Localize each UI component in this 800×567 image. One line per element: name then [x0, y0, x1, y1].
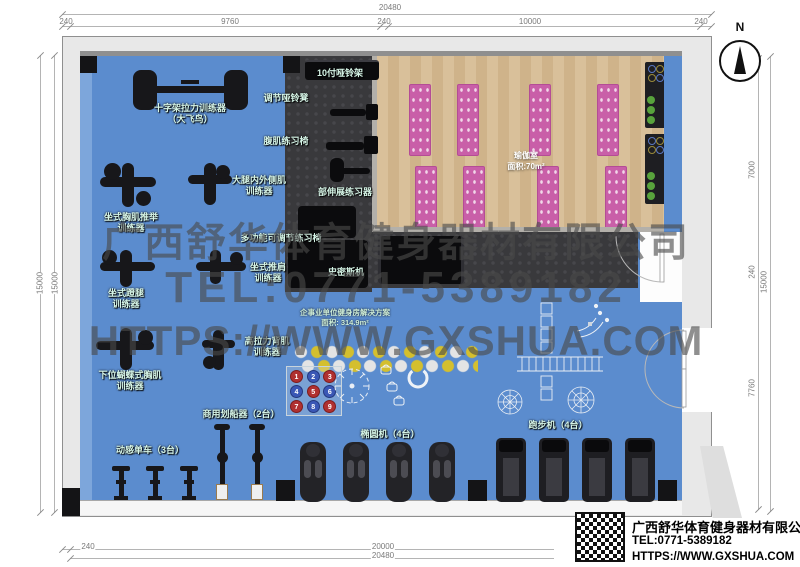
label-leg-press: 坐式蹬腿 训练器	[108, 288, 144, 310]
label-adj-db-bench: 调节哑铃凳	[263, 93, 308, 104]
part	[349, 444, 363, 457]
part	[306, 444, 320, 457]
dim-line-bottom-inner	[62, 549, 554, 550]
roller-end	[648, 146, 656, 154]
part	[433, 460, 440, 478]
medicine-ball: 1	[290, 370, 303, 383]
gym-ball	[647, 172, 655, 180]
part	[204, 163, 216, 205]
medicine-ball-rack: 1 2 3 4 5 6 7 8 9	[286, 366, 342, 416]
label-spin-bike: 动感单车（3台）	[116, 445, 184, 456]
part	[358, 460, 365, 478]
label-thigh: 大腿内外侧肌 训练器	[232, 175, 286, 197]
medicine-ball: 6	[323, 385, 336, 398]
dim-top-seg-2: 9760	[220, 17, 240, 26]
column	[80, 56, 97, 73]
part	[136, 191, 151, 206]
vestibule	[640, 232, 682, 302]
yoga-equipment-shelf	[645, 62, 664, 128]
dim-right-outer: 15000	[760, 271, 769, 293]
label-chest-press: 坐式胸肌推举 训练器	[104, 212, 158, 234]
roller-end	[656, 74, 664, 82]
part	[503, 458, 519, 496]
part	[330, 109, 366, 116]
medicine-ball: 9	[323, 400, 336, 413]
gym-ball	[647, 116, 655, 124]
label-elliptical: 椭圆机（4台）	[360, 429, 419, 440]
yoga-mat	[537, 166, 559, 232]
machine-thigh-abductor	[188, 163, 234, 205]
part	[203, 356, 216, 369]
part	[217, 452, 228, 463]
dim-left-outer: 15000	[36, 272, 45, 294]
dim-left-inner: 15000	[51, 272, 60, 294]
label-crossover: 十字架拉力训练器 （大飞鸟）	[154, 103, 226, 125]
part	[330, 158, 344, 182]
part	[150, 480, 160, 484]
yoga-mat	[415, 166, 437, 232]
machine-treadmill	[539, 438, 569, 502]
part	[392, 444, 406, 457]
yoga-mat	[463, 166, 485, 232]
logo-url: HTTPS://WWW.GXSHUA.COM	[632, 551, 794, 563]
multi-rack	[288, 240, 368, 288]
qr-code	[575, 512, 625, 562]
part	[585, 440, 609, 452]
label-rower: 商用划船器（2台）	[202, 409, 279, 420]
machine-leg-press	[100, 250, 157, 288]
part	[202, 340, 235, 348]
dim-tick	[708, 23, 715, 30]
part	[546, 458, 562, 496]
yoga-mat	[605, 166, 627, 232]
part	[589, 458, 605, 496]
machine-spin-bike	[146, 462, 164, 502]
part	[102, 250, 117, 265]
machine-elliptical	[386, 442, 412, 502]
label-treadmill: 跑步机（4台）	[528, 420, 587, 431]
part	[326, 142, 364, 150]
machine-elliptical	[429, 442, 455, 502]
gym-ball	[647, 182, 655, 190]
dim-bottom-seg-2: 20000	[371, 542, 395, 551]
stretch-trainer	[330, 158, 372, 184]
machine-pec-fly	[96, 328, 156, 370]
part	[252, 452, 263, 463]
machine-treadmill	[625, 438, 655, 502]
machine-rower	[212, 424, 232, 502]
label-back-stretch: 部伸展练习器	[318, 187, 372, 198]
machine-rower	[247, 424, 267, 502]
column	[658, 480, 677, 501]
medicine-ball: 2	[307, 370, 320, 383]
yoga-mat	[457, 84, 479, 156]
label-db-rack: 10付哑铃架	[317, 68, 363, 79]
gym-ball	[647, 192, 655, 200]
part	[347, 460, 354, 478]
logo-tel: TEL:0771-5389182	[632, 535, 732, 547]
part	[148, 496, 162, 500]
part	[216, 165, 230, 179]
part	[230, 252, 243, 265]
part	[182, 496, 196, 500]
dim-right-seg-1: 7000	[748, 161, 757, 179]
label-shoulder-press: 坐式推肩 训练器	[250, 262, 286, 284]
part	[390, 460, 397, 478]
part	[628, 440, 652, 452]
roller-end	[656, 146, 664, 154]
compass-icon	[719, 40, 761, 82]
part	[184, 480, 194, 484]
part	[251, 484, 263, 500]
dim-bottom-seg-1: 240	[80, 542, 95, 551]
yoga-mat	[597, 84, 619, 156]
label-multi-bench: 多功能可调节练习椅	[240, 233, 321, 244]
dim-line-top-total	[62, 14, 712, 15]
medicine-ball: 5	[307, 385, 320, 398]
smith-machine	[378, 236, 464, 284]
compass-needle	[734, 46, 746, 74]
label-lat-pull: 高拉力背肌 训练器	[244, 336, 289, 358]
part	[304, 460, 311, 478]
dim-right-seg-3: 7760	[748, 379, 757, 397]
part	[210, 250, 221, 284]
part	[216, 484, 228, 500]
column	[62, 488, 80, 516]
part	[444, 460, 451, 478]
gym-floor-edge	[80, 56, 92, 500]
part	[366, 104, 378, 120]
dim-tick	[51, 509, 58, 516]
part	[315, 460, 322, 478]
medicine-ball: 8	[307, 400, 320, 413]
machine-treadmill	[582, 438, 612, 502]
column	[276, 480, 295, 501]
machine-spin-bike	[180, 462, 198, 502]
label-smith: 史密斯机	[328, 267, 364, 278]
dim-line-bottom-total	[70, 558, 554, 559]
yoga-mat	[409, 84, 431, 156]
dim-top-seg-4: 10000	[518, 17, 542, 26]
dim-bottom-total: 20480	[371, 551, 395, 560]
roller-end	[648, 137, 656, 145]
adjustable-bench	[330, 104, 378, 120]
logo-company: 广西舒华体育健身器材有限公司	[632, 517, 800, 536]
part	[542, 440, 566, 452]
machine-chest-press	[100, 163, 158, 208]
part	[116, 480, 126, 484]
dim-top-total: 20480	[378, 3, 402, 12]
machine-lat-pulldown	[202, 330, 236, 370]
machine-spin-bike	[112, 462, 130, 502]
yoga-mat	[529, 84, 551, 156]
part	[499, 440, 523, 452]
roller-end	[656, 137, 664, 145]
dumbbell-row	[294, 345, 478, 360]
machine-elliptical	[343, 442, 369, 502]
ab-bench	[326, 136, 378, 154]
label-pec-fly: 下位蝴蝶式胸肌 训练器	[98, 370, 161, 392]
part	[153, 86, 228, 93]
dim-right-seg-2: 240	[748, 265, 757, 278]
medicine-ball: 4	[290, 385, 303, 398]
part	[401, 460, 408, 478]
part	[435, 444, 449, 457]
machine-elliptical	[300, 442, 326, 502]
main-door-opening	[682, 328, 712, 412]
label-ab-chair: 腹肌练习椅	[263, 136, 308, 147]
medicine-ball: 3	[323, 370, 336, 383]
machine-shoulder-press	[192, 250, 247, 286]
part	[632, 458, 648, 496]
dim-tick	[37, 509, 44, 516]
part	[181, 80, 199, 84]
dim-tick	[708, 11, 715, 18]
dim-tick	[767, 508, 774, 515]
medicine-ball: 7	[290, 400, 303, 413]
column	[468, 480, 487, 501]
part	[364, 136, 378, 154]
yoga-room-label: 瑜伽室 面积:70m²	[507, 150, 544, 172]
part	[114, 496, 128, 500]
yoga-room	[372, 56, 664, 232]
north-label: N	[736, 20, 745, 34]
machine-treadmill	[496, 438, 526, 502]
column	[283, 56, 300, 73]
dim-line-right-outer	[770, 56, 771, 512]
part	[104, 163, 121, 180]
floor-plan-page: 20480 240 9760 240 10000 240 15000 15000…	[0, 0, 800, 567]
roller-end	[648, 74, 656, 82]
gym-ball	[647, 96, 655, 104]
yoga-equipment-shelf	[645, 134, 664, 204]
part	[138, 330, 153, 345]
dim-tick	[755, 506, 762, 513]
roller-end	[656, 65, 664, 73]
label-solution: 企事业单位健身房解决方案 面积: 314.9m²	[300, 308, 390, 328]
roller-end	[648, 65, 656, 73]
gym-ball	[647, 106, 655, 114]
